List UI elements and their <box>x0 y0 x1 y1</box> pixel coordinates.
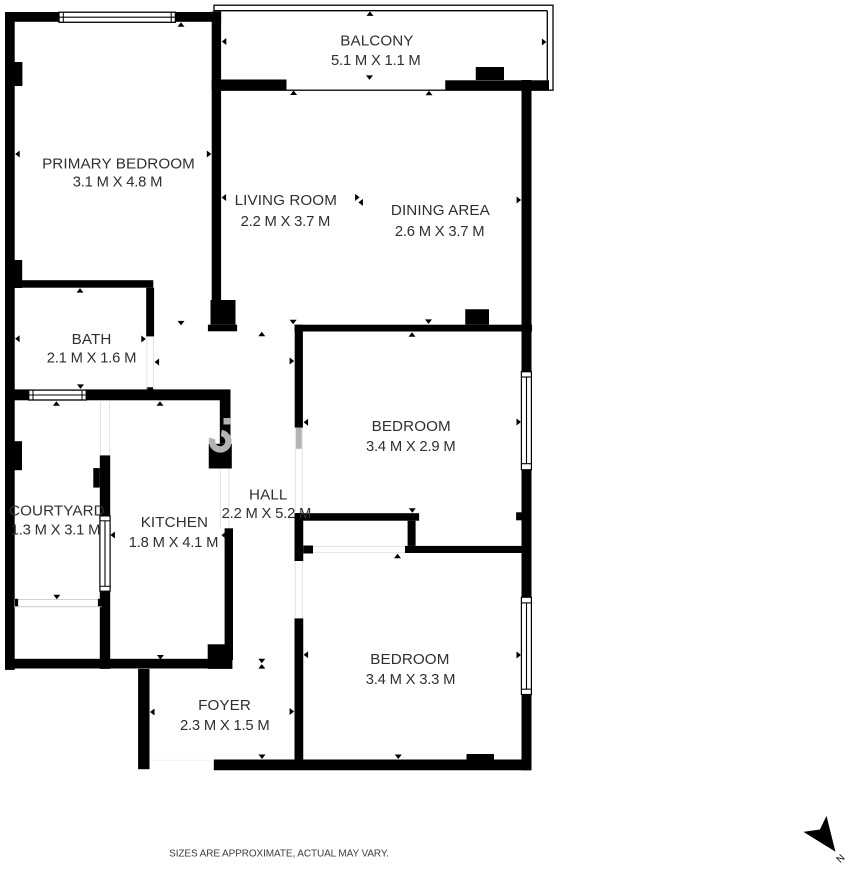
svg-text:3.1 M X 4.8 M: 3.1 M X 4.8 M <box>73 174 163 190</box>
svg-text:BATH: BATH <box>72 331 112 348</box>
svg-text:2.6 M X 3.7 M: 2.6 M X 3.7 M <box>395 224 485 240</box>
svg-text:HALL: HALL <box>249 486 287 503</box>
svg-text:2.2 M X 5.2 M: 2.2 M X 5.2 M <box>222 506 312 522</box>
svg-text:FOYER: FOYER <box>198 697 251 714</box>
svg-text:DINING AREA: DINING AREA <box>391 202 491 219</box>
svg-text:3.4 M X 2.9 M: 3.4 M X 2.9 M <box>366 439 456 455</box>
svg-text:1.3 M X 3.1 M: 1.3 M X 3.1 M <box>11 522 101 538</box>
svg-text:5.1 M X 1.1 M: 5.1 M X 1.1 M <box>331 53 421 69</box>
svg-text:BEDROOM: BEDROOM <box>372 418 451 435</box>
svg-text:2.3 M X 1.5 M: 2.3 M X 1.5 M <box>180 718 270 734</box>
svg-text:3.4 M X 3.3 M: 3.4 M X 3.3 M <box>366 672 456 688</box>
svg-text:BALCONY: BALCONY <box>340 33 413 50</box>
svg-text:SIZES ARE APPROXIMATE, ACTUAL: SIZES ARE APPROXIMATE, ACTUAL MAY VARY. <box>169 849 389 860</box>
svg-text:PRIMARY BEDROOM: PRIMARY BEDROOM <box>42 156 195 173</box>
svg-text:COURTYARD: COURTYARD <box>9 503 105 520</box>
svg-text:BEDROOM: BEDROOM <box>370 651 449 668</box>
svg-text:1.8 M X 4.1 M: 1.8 M X 4.1 M <box>129 535 219 551</box>
svg-text:LIVING ROOM: LIVING ROOM <box>235 192 337 209</box>
svg-text:2.2 M X 3.7 M: 2.2 M X 3.7 M <box>241 214 331 230</box>
svg-text:KITCHEN: KITCHEN <box>141 514 208 531</box>
svg-text:2.1 M X 1.6 M: 2.1 M X 1.6 M <box>47 351 137 367</box>
